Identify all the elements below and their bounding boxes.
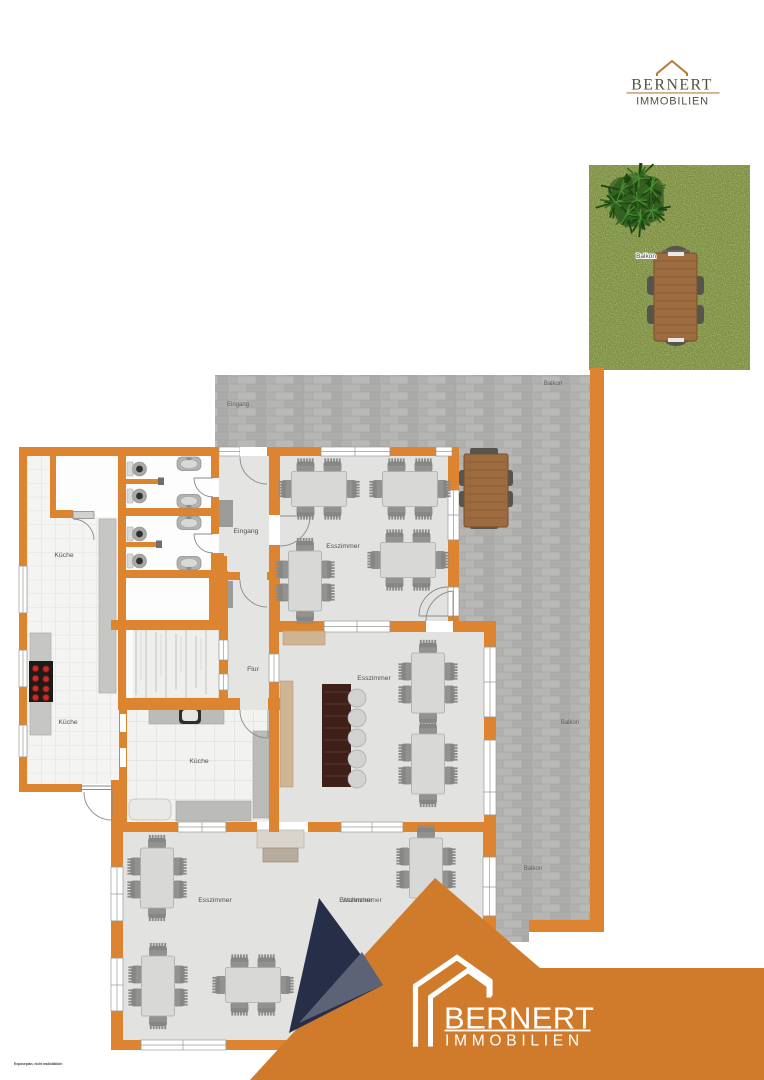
svg-text:Küche: Küche	[54, 552, 73, 559]
svg-text:Balkon: Balkon	[561, 720, 579, 726]
svg-text:IMMOBILIEN: IMMOBILIEN	[445, 1033, 584, 1050]
svg-text:Esszimmer: Esszimmer	[198, 897, 232, 904]
svg-text:BERNERT: BERNERT	[631, 77, 713, 94]
svg-text:Exposeplan, nicht maßstäblich: Exposeplan, nicht maßstäblich	[14, 1062, 62, 1066]
svg-text:Eingang: Eingang	[227, 402, 249, 408]
svg-text:Küche: Küche	[58, 719, 77, 726]
svg-text:Wohnzimmer: Wohnzimmer	[342, 897, 383, 904]
svg-text:Balkon: Balkon	[524, 866, 542, 872]
svg-text:IMMOBILIEN: IMMOBILIEN	[636, 96, 709, 108]
svg-text:Esszimmer: Esszimmer	[357, 675, 391, 682]
svg-text:Balkon: Balkon	[544, 381, 562, 387]
svg-text:Flur: Flur	[247, 666, 259, 673]
svg-text:Küche: Küche	[189, 758, 208, 765]
svg-text:Esszimmer: Esszimmer	[326, 543, 360, 550]
svg-text:Balkon: Balkon	[636, 253, 656, 260]
svg-text:Eingang: Eingang	[234, 528, 259, 535]
